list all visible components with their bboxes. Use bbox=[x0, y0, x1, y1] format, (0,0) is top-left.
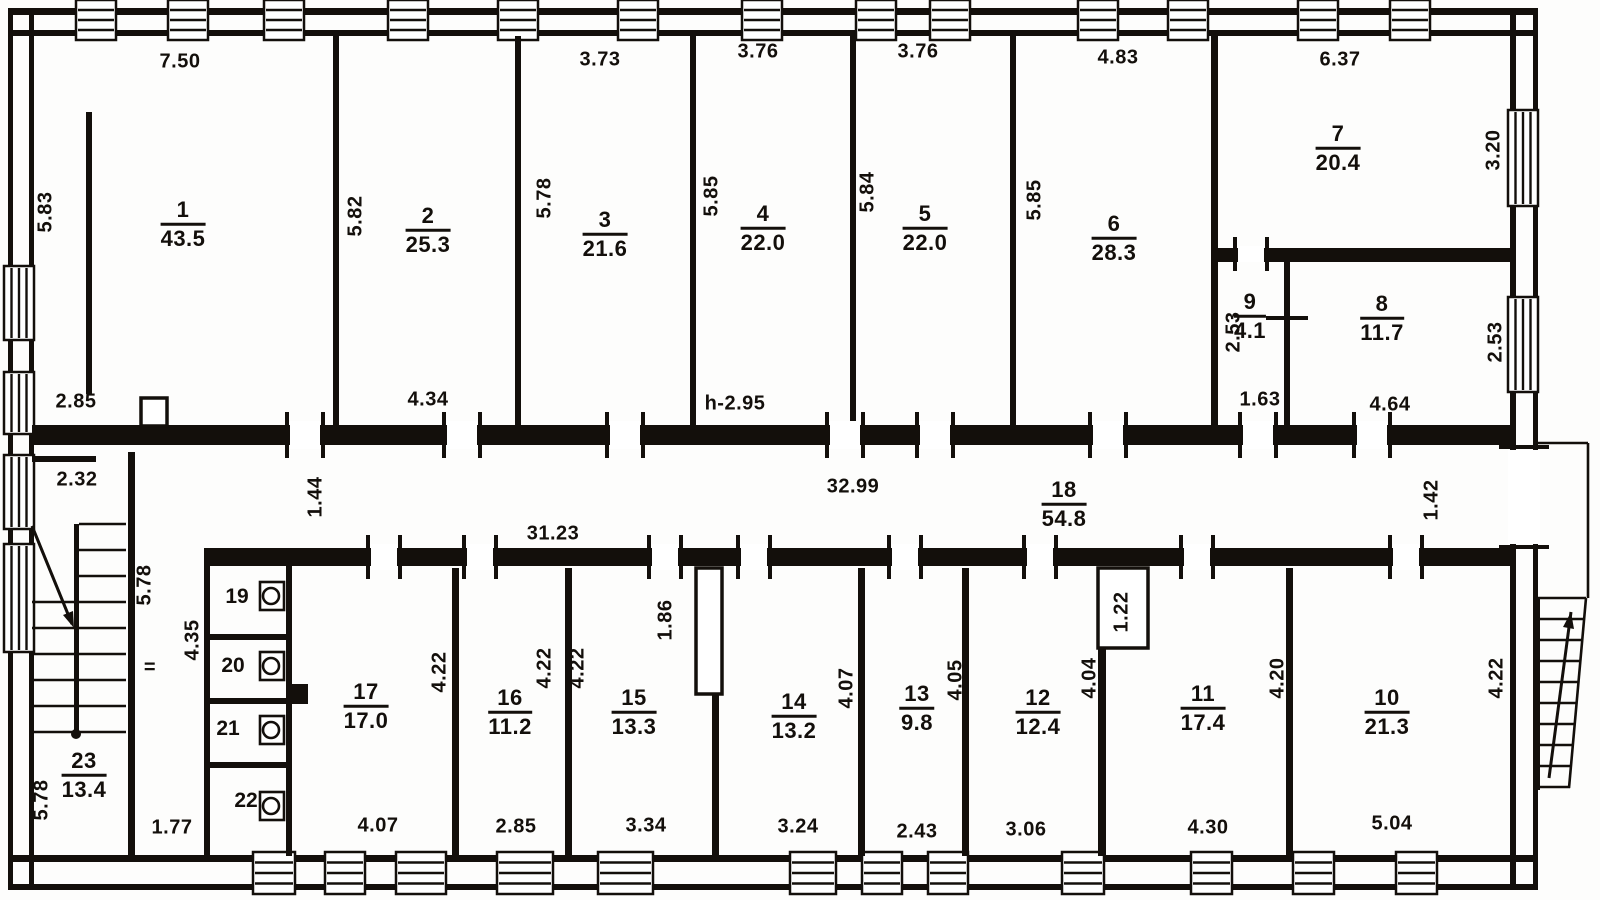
wall-niche bbox=[141, 398, 167, 426]
door-jamb-tick bbox=[1499, 445, 1549, 449]
wall-niche bbox=[696, 568, 722, 694]
door-jamb-tick bbox=[366, 535, 370, 579]
floor-plan-page: 143.5225.3321.6422.0522.0628.3720.4811.7… bbox=[0, 0, 1600, 900]
wall-segment bbox=[1536, 598, 1540, 790]
door-jamb-tick bbox=[1124, 412, 1128, 458]
door-jamb-tick bbox=[1179, 535, 1183, 579]
wall-segment bbox=[1286, 568, 1293, 856]
wall-segment bbox=[32, 425, 1510, 445]
door-jamb-tick bbox=[442, 412, 446, 458]
door-jamb-tick bbox=[1233, 237, 1237, 271]
door-jamb-tick bbox=[768, 535, 772, 579]
door-opening bbox=[610, 421, 640, 449]
toilet-bowl-icon bbox=[263, 722, 279, 738]
door-jamb-tick bbox=[919, 535, 923, 579]
door-opening bbox=[1184, 544, 1210, 570]
door-opening bbox=[1238, 246, 1264, 262]
door-opening bbox=[830, 421, 860, 449]
wall-segment bbox=[1211, 36, 1218, 425]
stair-newel-post bbox=[71, 729, 81, 739]
door-jamb-tick bbox=[478, 412, 482, 458]
door-opening bbox=[892, 544, 918, 570]
wall-segment bbox=[515, 36, 521, 425]
wall-segment bbox=[565, 568, 572, 856]
wall-segment bbox=[1010, 36, 1016, 425]
door-jamb-tick bbox=[679, 535, 683, 579]
door-jamb-tick bbox=[647, 535, 651, 579]
toilet-bowl-icon bbox=[263, 798, 279, 814]
outer-wall-face bbox=[29, 8, 34, 890]
door-opening bbox=[467, 544, 493, 570]
wall-segment bbox=[850, 36, 856, 425]
door-jamb-tick bbox=[285, 412, 289, 458]
wall-segment bbox=[204, 552, 292, 558]
door-jamb-tick bbox=[605, 412, 609, 458]
stair-arrow-head bbox=[1563, 612, 1574, 629]
stair-arrow-head bbox=[63, 611, 74, 628]
wall-segment bbox=[333, 36, 339, 425]
wall-segment bbox=[206, 698, 286, 704]
door-jamb-tick bbox=[1420, 535, 1424, 579]
stair-direction-arrow bbox=[1549, 612, 1571, 778]
door-jamb-tick bbox=[462, 535, 466, 579]
wall-segment bbox=[206, 634, 286, 640]
wall-segment bbox=[206, 762, 286, 768]
door-jamb-tick bbox=[861, 412, 865, 458]
outer-wall-face bbox=[8, 8, 13, 890]
door-jamb-tick bbox=[887, 535, 891, 579]
wall-segment bbox=[452, 568, 459, 856]
door-opening bbox=[1393, 544, 1419, 570]
door-jamb-tick bbox=[1238, 412, 1242, 458]
door-jamb-tick bbox=[494, 535, 498, 579]
door-jamb-tick bbox=[1352, 412, 1356, 458]
door-jamb-tick bbox=[1388, 535, 1392, 579]
door-opening bbox=[290, 421, 320, 449]
door-jamb-tick bbox=[1388, 412, 1392, 458]
door-jamb-tick bbox=[1088, 412, 1092, 458]
door-opening bbox=[1357, 421, 1387, 449]
wall-segment bbox=[690, 36, 696, 425]
door-jamb-tick bbox=[1265, 237, 1269, 271]
floor-plan-drawing: 143.5225.3321.6422.0522.0628.3720.4811.7… bbox=[0, 0, 1600, 900]
door-jamb-tick bbox=[1499, 545, 1549, 549]
door-jamb-tick bbox=[1022, 535, 1026, 579]
wall-segment bbox=[712, 692, 719, 856]
wall-segment bbox=[962, 568, 969, 856]
door-jamb-tick bbox=[951, 412, 955, 458]
door-opening bbox=[1508, 450, 1540, 544]
door-jamb-tick bbox=[398, 535, 402, 579]
door-jamb-tick bbox=[641, 412, 645, 458]
wall-segment bbox=[32, 456, 96, 462]
stair-direction-arrow bbox=[32, 526, 72, 624]
door-jamb-tick bbox=[825, 412, 829, 458]
door-jamb-tick bbox=[736, 535, 740, 579]
wall-segment bbox=[86, 112, 92, 394]
door-opening bbox=[371, 544, 397, 570]
wall-segment bbox=[1098, 646, 1106, 856]
door-jamb-tick bbox=[1211, 535, 1215, 579]
door-opening bbox=[1093, 421, 1123, 449]
toilet-bowl-icon bbox=[263, 658, 279, 674]
door-opening bbox=[741, 544, 767, 570]
wall-segment bbox=[288, 684, 308, 704]
door-opening bbox=[920, 421, 950, 449]
floor-plan-canvas bbox=[0, 0, 1600, 900]
door-opening bbox=[447, 421, 477, 449]
wall-segment bbox=[858, 568, 865, 856]
toilet-bowl-icon bbox=[263, 588, 279, 604]
wall-niche bbox=[1098, 568, 1148, 648]
dimension-tick bbox=[1266, 316, 1308, 320]
door-opening bbox=[1243, 421, 1273, 449]
door-jamb-tick bbox=[915, 412, 919, 458]
door-jamb-tick bbox=[1274, 412, 1278, 458]
wall-segment bbox=[74, 524, 79, 736]
door-opening bbox=[652, 544, 678, 570]
wall-segment bbox=[1284, 262, 1290, 425]
door-jamb-tick bbox=[1054, 535, 1058, 579]
door-jamb-tick bbox=[321, 412, 325, 458]
wall-segment bbox=[128, 452, 135, 856]
door-opening bbox=[1027, 544, 1053, 570]
